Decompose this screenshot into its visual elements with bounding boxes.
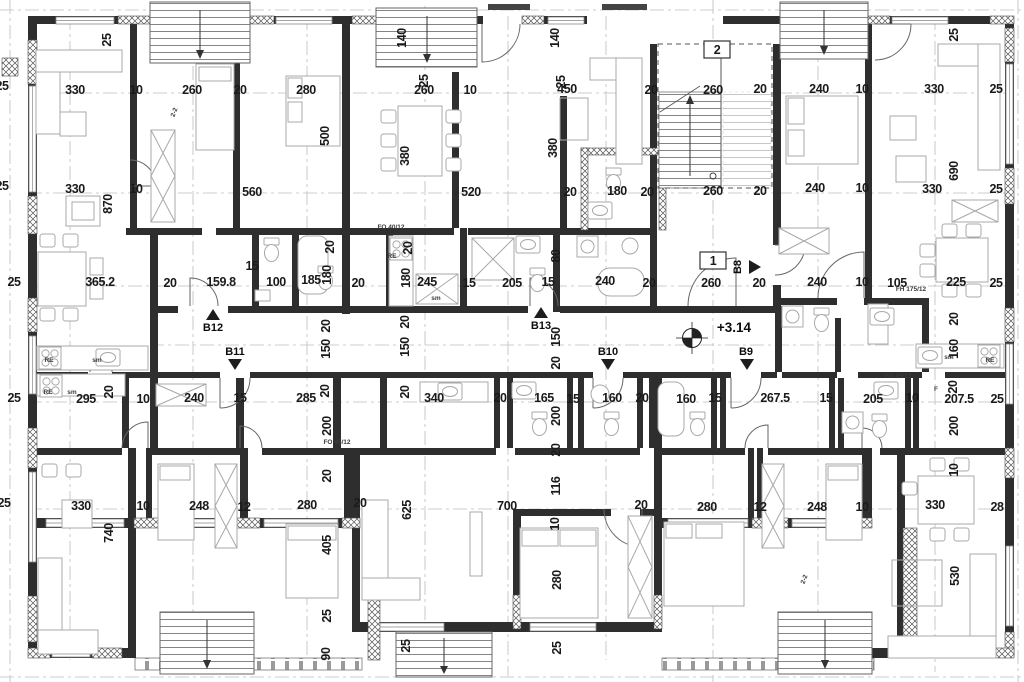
dimension-label: 260	[703, 184, 723, 198]
fixture-label: sm	[944, 354, 954, 361]
dimension-label: 180	[320, 265, 334, 285]
dimension-label: 200	[320, 416, 334, 436]
dimension-label: 10	[129, 182, 143, 196]
dimension-label: 160	[676, 392, 696, 406]
fixture-label: FO 45/12	[323, 439, 350, 446]
dimension-label: 205	[502, 276, 522, 290]
dimension-label: 160	[602, 391, 622, 405]
dimension-label: 10	[855, 181, 869, 195]
dimension-label: 280	[296, 83, 316, 97]
dimension-label: 240	[807, 275, 827, 289]
dimension-label: 20	[163, 276, 177, 290]
balcony-stairs-right	[778, 612, 872, 674]
unit-entry-arrow	[601, 359, 615, 370]
fixture-label: RE	[387, 253, 397, 260]
dimension-label: 20	[549, 443, 563, 457]
dimension-label: 330	[922, 182, 942, 196]
dimension-label: 280	[297, 498, 317, 512]
dimension-label: 295	[76, 392, 96, 406]
unit-label-B13: B13	[531, 320, 551, 332]
dimension-label: 380	[546, 138, 560, 158]
dimension-label: 20	[353, 496, 367, 510]
dimension-label: 15	[245, 259, 259, 273]
fixture-label: F	[934, 386, 938, 393]
dimension-label: 340	[424, 391, 444, 405]
bed	[286, 524, 338, 598]
dimension-label: 700	[497, 499, 517, 513]
unit-label-B8: B8	[732, 260, 744, 274]
fixture-label: sm	[92, 357, 102, 364]
dimension-label: 15	[233, 391, 247, 405]
dimension-label: 10	[548, 517, 562, 531]
dimension-label: 225	[946, 275, 966, 289]
fixture-label: sm	[67, 389, 77, 396]
dimension-label: 20	[493, 391, 507, 405]
dimension-label: 25	[989, 276, 1003, 290]
dimension-label: 248	[807, 500, 827, 514]
unit-label-B10: B10	[598, 346, 618, 358]
wardrobe	[215, 464, 237, 548]
dimension-label: 10	[855, 275, 869, 289]
dimension-label: 260	[701, 276, 721, 290]
dimension-label: 116	[549, 476, 563, 495]
wardrobe	[151, 130, 175, 222]
dimension-label: 25	[0, 496, 11, 510]
level-marker	[676, 322, 708, 354]
dimension-label: 260	[414, 83, 434, 97]
dimension-label: 10	[136, 392, 150, 406]
dimension-label: 15	[462, 276, 476, 290]
level-annotation: +3.14	[717, 320, 752, 335]
dimension-label: 285	[296, 391, 316, 405]
dimension-label: 20	[640, 185, 654, 199]
dimension-label: 330	[65, 182, 85, 196]
dimension-label: 260	[182, 83, 202, 97]
dimension-label: 20	[319, 319, 333, 333]
dimension-label: 15	[819, 391, 833, 405]
dimension-label: 267.5	[760, 391, 790, 405]
dimension-label: 10	[855, 500, 869, 514]
dimension-label: 870	[101, 194, 115, 214]
dimension-label: 25	[0, 179, 9, 193]
balcony-stairs-left	[160, 612, 254, 674]
fixture-label: RE	[985, 357, 995, 364]
dimension-label: 28	[990, 500, 1004, 514]
dimension-label: 500	[318, 126, 332, 146]
dimension-label: 20	[947, 312, 961, 326]
main-stairwell	[658, 44, 772, 188]
floor-number: 1	[710, 254, 717, 268]
entrance-stairs-north-left	[150, 2, 250, 63]
dimension-label: 15	[708, 391, 722, 405]
dimension-label: 185	[301, 273, 321, 287]
unit-entry-arrow	[740, 359, 754, 370]
dimension-label: 280	[697, 500, 717, 514]
bed	[786, 96, 858, 164]
coffee-table	[66, 196, 100, 226]
fixture-label: FO 45/12	[884, 373, 911, 380]
dining-table	[381, 106, 461, 176]
dimension-label: 140	[395, 28, 409, 48]
dimension-label: 625	[400, 500, 414, 520]
unit-entry-arrow	[228, 359, 242, 370]
dimension-label: 240	[184, 391, 204, 405]
floor-plan: 2525330102602028025140252601014025450202…	[0, 0, 1024, 682]
dimension-label: 20	[642, 276, 656, 290]
dimension-label: 365.2	[85, 275, 115, 289]
dimension-label: 25	[990, 392, 1004, 406]
wardrobe	[952, 200, 998, 222]
entrance-stairs-north-mid	[376, 8, 477, 67]
dimension-label: 240	[805, 181, 825, 195]
bed	[196, 64, 234, 150]
dimension-label: 25	[0, 79, 9, 93]
dimension-label: 150	[398, 337, 412, 357]
dimension-label: 20	[753, 82, 767, 96]
dimension-label: 180	[399, 268, 413, 288]
dimension-label: 20	[102, 385, 116, 399]
dimension-label: 330	[925, 498, 945, 512]
dimension-label: 10	[136, 499, 150, 513]
dimension-label: 200	[549, 406, 563, 426]
dimension-label: 25	[989, 82, 1003, 96]
fixture-label: FH 175/12	[896, 286, 927, 293]
dimension-label: 180	[607, 184, 627, 198]
bathroom	[658, 382, 705, 436]
balcony-stairs-center	[396, 632, 492, 677]
dimension-label: 240	[809, 82, 829, 96]
unit-label-B9: B9	[739, 346, 753, 358]
dimension-label: 100	[266, 275, 286, 289]
dimension-label: 20	[351, 276, 365, 290]
dimension-label: 10	[463, 83, 477, 97]
kitchen	[868, 304, 894, 344]
wardrobe	[628, 516, 652, 618]
dimension-label: 165	[534, 391, 554, 405]
fixture-label: sm	[431, 295, 441, 302]
dimension-label: 260	[703, 83, 723, 97]
dimension-label: 20	[398, 385, 412, 399]
unit-label-B12: B12	[203, 322, 223, 334]
dimension-label: 450	[557, 82, 577, 96]
dimension-label: 20	[635, 391, 649, 405]
unit-entry-arrow	[534, 307, 548, 318]
fixture-label: 2-2	[800, 574, 810, 586]
dimension-label: 12	[237, 500, 251, 514]
dimension-label: 20	[563, 185, 577, 199]
dimension-label: 12	[753, 500, 767, 514]
sofa	[362, 500, 482, 600]
wardrobe	[779, 228, 829, 254]
floor-plan-canvas: 2525330102602028025140252601014025450202…	[0, 0, 1024, 682]
fixture-label: 2-2	[170, 107, 180, 119]
dimension-label: 25	[320, 609, 334, 623]
dimension-label: 25	[989, 182, 1003, 196]
dimension-label: 20	[753, 184, 767, 198]
dimension-label: 159.8	[206, 275, 236, 289]
dimension-label: 20	[401, 241, 415, 255]
kitchen-counter	[37, 346, 148, 397]
dimension-label: 240	[595, 274, 615, 288]
dimension-label: 20	[323, 240, 337, 254]
dimension-label: 20	[398, 315, 412, 329]
dimension-label: 200	[947, 416, 961, 436]
dimension-label: 25	[7, 275, 21, 289]
sofa	[890, 44, 1000, 182]
dimension-label: 15	[541, 275, 555, 289]
dimension-label: 330	[65, 83, 85, 97]
dimension-label: 20	[320, 469, 334, 483]
fixture-label: RE	[44, 357, 54, 364]
dimension-label: 20	[233, 83, 247, 97]
bathroom	[782, 306, 829, 332]
dimension-label: 15	[566, 392, 580, 406]
dimension-label: 530	[948, 566, 962, 586]
furniture	[36, 44, 1004, 658]
sofa	[38, 558, 98, 654]
dimension-label: 245	[417, 275, 437, 289]
dimension-label: 90	[319, 647, 333, 661]
dimension-label: 20	[752, 276, 766, 290]
dimension-label: 80	[549, 249, 563, 263]
dimension-label: 150	[319, 339, 333, 359]
dimension-label: 20	[549, 356, 563, 370]
unit-label-B11: B11	[225, 346, 245, 358]
dimension-label: 10	[855, 82, 869, 96]
dimension-label: 330	[924, 82, 944, 96]
upper-floor-edges	[160, 4, 831, 10]
dimension-label: 25	[7, 391, 21, 405]
dimension-label: 740	[102, 523, 116, 543]
entrance-stairs-north-right	[780, 2, 868, 59]
dimension-label: 560	[242, 185, 262, 199]
dimension-label: 20	[644, 83, 658, 97]
dimension-label: 205	[863, 392, 883, 406]
dimension-label: 690	[947, 161, 961, 181]
unit-entry-arrow	[206, 309, 220, 320]
floor-number: 2	[714, 43, 721, 57]
dimension-label: 520	[461, 185, 481, 199]
dimension-label: 10	[129, 83, 143, 97]
bed	[664, 522, 744, 606]
dimension-label: 25	[947, 28, 961, 42]
fixture-label: RE	[43, 389, 53, 396]
dimension-label: 248	[189, 499, 209, 513]
dimension-label: 150	[549, 327, 563, 347]
dimension-label: 380	[398, 146, 412, 166]
dimension-label: 405	[320, 535, 334, 555]
dimension-label: 280	[550, 570, 564, 590]
dimension-label: 25	[399, 639, 413, 653]
dimension-label: 25	[550, 641, 564, 655]
dimension-label: 20	[634, 498, 648, 512]
dimension-label: 20	[318, 384, 332, 398]
dimension-label: 140	[548, 28, 562, 48]
dimension-label: 20	[946, 380, 960, 394]
unit-entry-arrow	[749, 260, 761, 274]
dimension-label: 330	[71, 499, 91, 513]
dimension-label: 10	[905, 391, 919, 405]
dimension-label: 25	[100, 33, 114, 47]
fixture-label: FO 40/12	[377, 224, 404, 231]
dimension-label: 10	[947, 463, 961, 477]
